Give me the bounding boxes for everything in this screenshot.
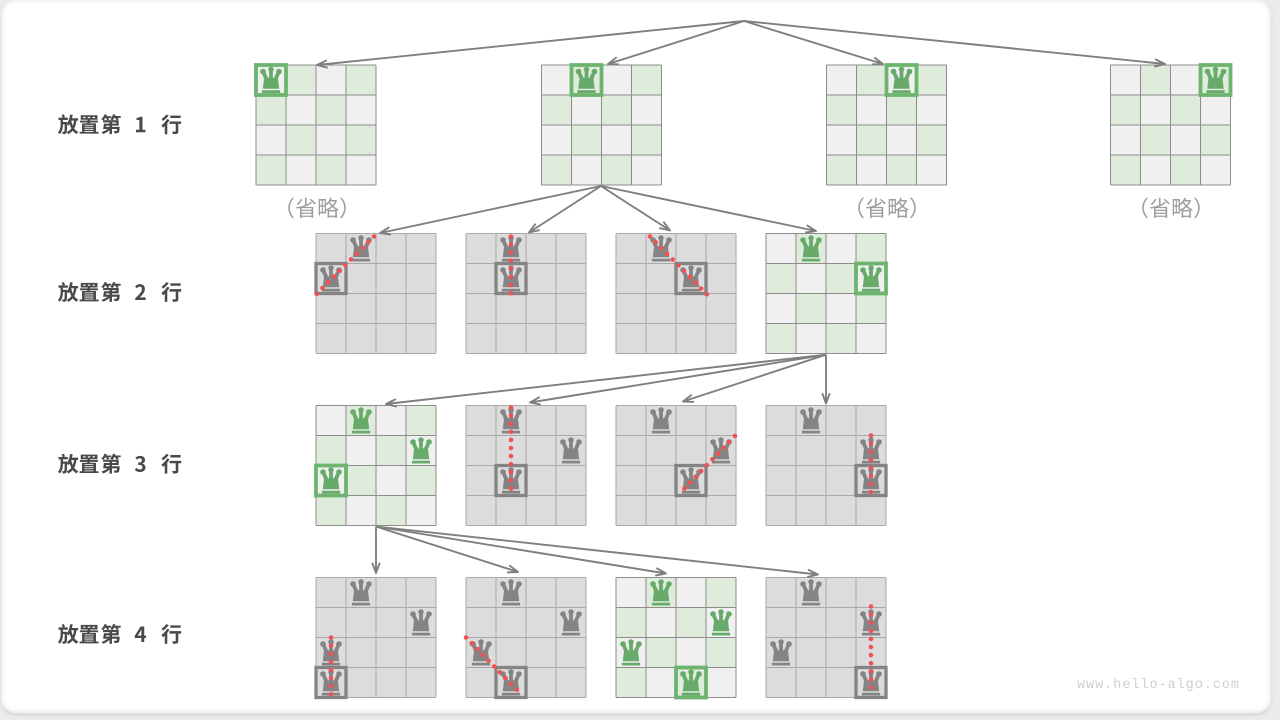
svg-text:www.hello-algo.com: www.hello-algo.com [1077, 678, 1240, 693]
